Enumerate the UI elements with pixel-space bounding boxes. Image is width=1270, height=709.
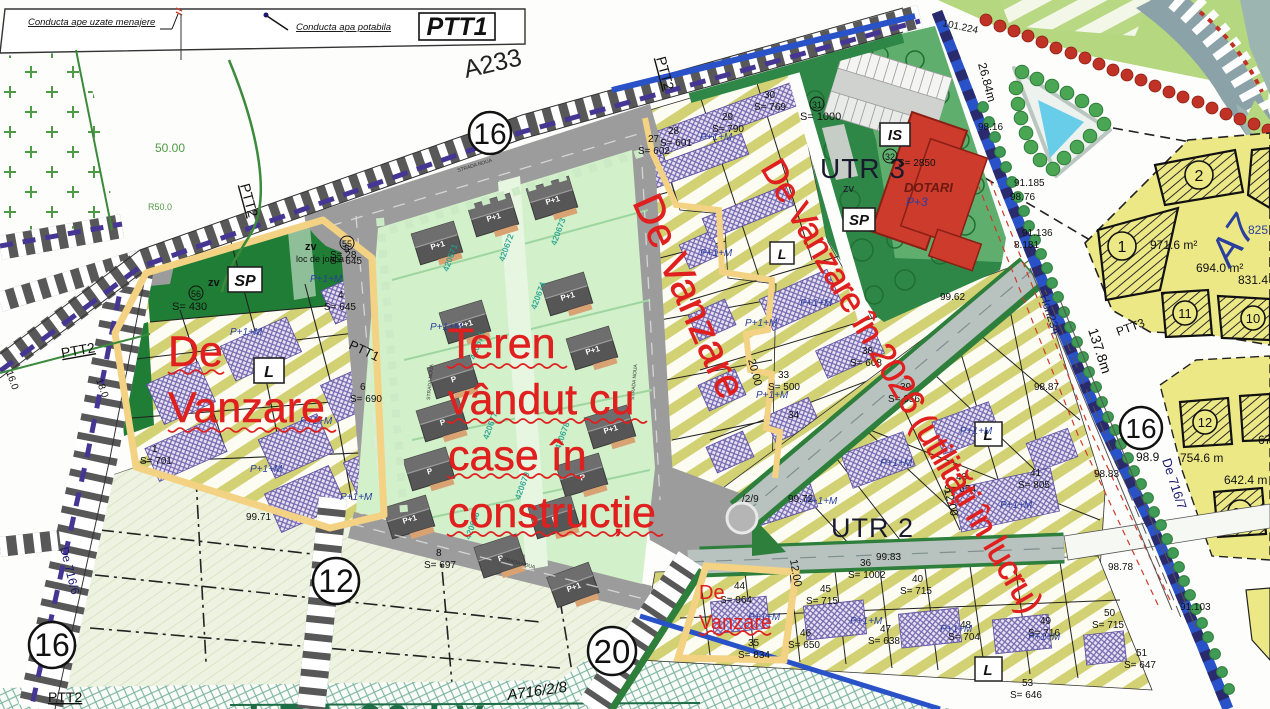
- svg-text:29: 29: [722, 112, 734, 123]
- svg-text:S= 805: S= 805: [1018, 480, 1050, 491]
- svg-text:zv: zv: [305, 241, 318, 253]
- svg-text:36: 36: [860, 558, 872, 569]
- svg-text:P+1+M: P+1+M: [230, 327, 263, 338]
- svg-text:Conducta ape uzate menajere: Conducta ape uzate menajere: [28, 17, 155, 28]
- svg-text:971.6 m²: 971.6 m²: [1150, 238, 1197, 252]
- svg-text:construcție: construcție: [448, 489, 656, 537]
- svg-text:4: 4: [338, 290, 344, 301]
- svg-text:S= 697: S= 697: [424, 560, 456, 571]
- svg-text:31: 31: [812, 100, 822, 110]
- svg-text:S= 1002: S= 1002: [848, 570, 886, 581]
- svg-text:91.103: 91.103: [1180, 602, 1211, 613]
- svg-text:case în: case în: [448, 432, 587, 480]
- svg-text:8: 8: [436, 548, 442, 559]
- svg-text:S= 430: S= 430: [172, 301, 207, 313]
- svg-text:98.76: 98.76: [1010, 192, 1035, 203]
- svg-text:10: 10: [1246, 311, 1260, 326]
- svg-text:6: 6: [360, 382, 366, 393]
- svg-text:De: De: [699, 582, 725, 604]
- svg-text:PTT1: PTT1: [426, 13, 487, 41]
- svg-text:P+3: P+3: [906, 195, 928, 209]
- svg-text:R50.0: R50.0: [148, 202, 172, 212]
- svg-text:99.62: 99.62: [940, 292, 965, 303]
- svg-text:zv: zv: [208, 277, 221, 289]
- svg-text:S= 645: S= 645: [324, 302, 356, 313]
- svg-text:PTT2: PTT2: [48, 689, 82, 705]
- svg-text:1: 1: [152, 444, 158, 455]
- svg-text:P+1+M: P+1+M: [960, 426, 993, 437]
- svg-text:S= 701: S= 701: [140, 456, 172, 467]
- svg-text:30: 30: [764, 90, 776, 101]
- svg-text:12: 12: [318, 563, 354, 599]
- svg-text:50.00: 50.00: [155, 141, 185, 155]
- svg-text:53: 53: [1022, 678, 1034, 689]
- svg-text:Conducta apa potabila: Conducta apa potabila: [296, 22, 391, 33]
- svg-text:UTR 2: UTR 2: [831, 513, 914, 543]
- svg-text:91.185: 91.185: [1014, 178, 1045, 189]
- svg-text:46: 46: [800, 628, 812, 639]
- svg-text:28: 28: [668, 126, 680, 137]
- svg-text:S= 645: S= 645: [330, 256, 362, 267]
- svg-text:zv: zv: [843, 183, 855, 195]
- svg-text:51: 51: [1136, 648, 1148, 659]
- svg-text:20: 20: [594, 633, 631, 670]
- svg-text:5: 5: [344, 244, 350, 255]
- svg-text:P+1+M: P+1+M: [1028, 632, 1061, 643]
- svg-text:S= 715: S= 715: [900, 586, 932, 597]
- svg-text:P+1+M: P+1+M: [756, 390, 789, 401]
- svg-text:DOTARI: DOTARI: [904, 180, 953, 195]
- svg-text:12: 12: [1198, 415, 1212, 430]
- svg-text:De: De: [168, 328, 223, 376]
- svg-text:34: 34: [788, 410, 800, 421]
- svg-text:99.72: 99.72: [788, 494, 813, 505]
- svg-text:35: 35: [748, 638, 760, 649]
- svg-text:27: 27: [648, 134, 660, 145]
- svg-text:S= 769: S= 769: [754, 102, 786, 113]
- svg-text:99.83: 99.83: [876, 552, 901, 563]
- svg-text:S= 646: S= 646: [1010, 690, 1042, 701]
- svg-text:1: 1: [1118, 239, 1127, 256]
- svg-text:16: 16: [473, 118, 506, 151]
- svg-text:754.6 m: 754.6 m: [1180, 451, 1223, 465]
- svg-text:S= 601: S= 601: [660, 138, 692, 149]
- svg-text:S= 1000: S= 1000: [800, 111, 841, 123]
- svg-text:45: 45: [820, 584, 832, 595]
- svg-text:S= 715: S= 715: [806, 596, 838, 607]
- svg-text:LEA 20 kV: LEA 20 kV: [248, 696, 488, 709]
- svg-text:IS: IS: [888, 127, 902, 144]
- svg-text:98.9: 98.9: [1136, 450, 1160, 464]
- svg-text:S= 647: S= 647: [1124, 660, 1156, 671]
- svg-text:S= 2850: S= 2850: [898, 158, 936, 169]
- svg-text:P+1+M: P+1+M: [1000, 500, 1033, 511]
- svg-text:P+1+M: P+1+M: [850, 616, 883, 627]
- svg-text:S= 650: S= 650: [788, 640, 820, 651]
- svg-text:P+1+M: P+1+M: [940, 624, 973, 635]
- svg-text:98.87: 98.87: [1034, 382, 1059, 393]
- svg-text:P+1+M: P+1+M: [745, 318, 778, 329]
- svg-text:P+1+M: P+1+M: [800, 298, 833, 309]
- svg-text:642.4 m: 642.4 m: [1224, 473, 1267, 487]
- svg-text:L: L: [778, 246, 787, 262]
- svg-text:91.136: 91.136: [1022, 228, 1053, 239]
- svg-text:P+1+M: P+1+M: [700, 248, 733, 259]
- svg-text:32: 32: [885, 152, 895, 162]
- svg-text:40: 40: [912, 574, 924, 585]
- svg-text:16: 16: [1125, 413, 1156, 444]
- svg-text:P+1+M: P+1+M: [310, 274, 343, 285]
- svg-text:P+1+M: P+1+M: [880, 458, 913, 469]
- svg-text:P+1+M: P+1+M: [700, 132, 733, 143]
- svg-text:67: 67: [1258, 433, 1270, 447]
- svg-text:Vanzare: Vanzare: [168, 384, 325, 432]
- svg-text:56: 56: [191, 289, 201, 299]
- svg-text:S= 964: S= 964: [720, 595, 752, 606]
- svg-text:P+1+M: P+1+M: [250, 464, 283, 475]
- svg-text:Teren: Teren: [448, 320, 556, 368]
- svg-text:/2/9: /2/9: [742, 494, 759, 505]
- svg-text:SP: SP: [849, 212, 870, 229]
- svg-text:16: 16: [34, 627, 70, 663]
- svg-text:98.83: 98.83: [1094, 469, 1119, 480]
- svg-text:L: L: [983, 662, 992, 679]
- svg-text:98.78: 98.78: [1108, 562, 1133, 573]
- svg-text:P+1+M: P+1+M: [340, 492, 373, 503]
- svg-text:11: 11: [1178, 306, 1192, 321]
- svg-text:99.71: 99.71: [246, 512, 271, 523]
- svg-text:50: 50: [1104, 608, 1116, 619]
- svg-text:8.181: 8.181: [1014, 240, 1039, 251]
- svg-text:SP: SP: [234, 273, 256, 290]
- svg-text:S= 715: S= 715: [1092, 620, 1124, 631]
- svg-text:S= 834: S= 834: [738, 650, 770, 661]
- svg-text:831.4: 831.4: [1238, 273, 1268, 287]
- svg-text:S= 638: S= 638: [868, 636, 900, 647]
- svg-text:vândut cu: vândut cu: [448, 376, 634, 424]
- svg-text:L: L: [264, 364, 274, 381]
- svg-text:41: 41: [1030, 468, 1042, 479]
- svg-text:33: 33: [778, 370, 790, 381]
- svg-text:2: 2: [1195, 168, 1204, 185]
- svg-text:S= 690: S= 690: [350, 394, 382, 405]
- svg-text:98.16: 98.16: [978, 122, 1003, 133]
- svg-text:44: 44: [734, 581, 746, 592]
- svg-text:49: 49: [1040, 616, 1052, 627]
